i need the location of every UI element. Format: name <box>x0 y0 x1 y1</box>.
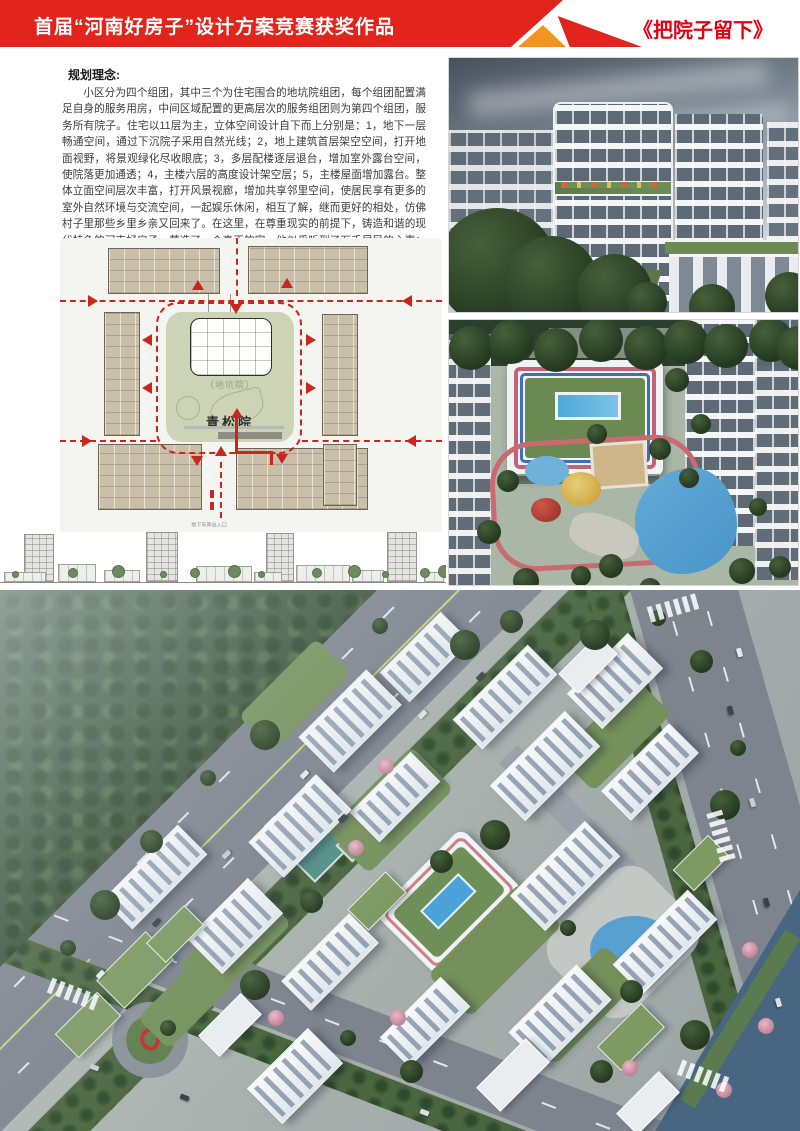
garage-mark <box>210 502 214 510</box>
street-tree-icon <box>340 1030 356 1046</box>
street-tree-icon <box>480 820 510 850</box>
tree-icon <box>599 554 623 578</box>
header-banner: 首届“河南好房子”设计方案竞赛获奖作品 《把院子留下》 <box>0 0 800 57</box>
tree-icon <box>664 320 708 364</box>
flow-line-horizontal-lower-right <box>302 440 442 442</box>
car-icon <box>179 1094 189 1102</box>
tree-icon <box>489 320 533 364</box>
photo-courtyard <box>448 319 799 586</box>
blossom-tree-icon <box>378 758 394 774</box>
street-tree-icon <box>620 980 643 1003</box>
roof-pool <box>555 392 621 420</box>
street-tree-icon <box>240 970 270 1000</box>
street-tree-icon <box>560 920 576 936</box>
tree-icon <box>679 468 699 488</box>
site-plan-diagram: （地坑院） 青松院 地下车库出入 <box>60 238 442 538</box>
tree-icon <box>649 438 671 460</box>
aerial-estate-layer <box>0 590 800 1131</box>
tree-icon <box>665 368 689 392</box>
elevation-tree-icon <box>190 568 200 578</box>
elevation-tree-icon <box>112 565 125 578</box>
flow-arrow-icon <box>142 382 152 394</box>
flow-arrow-icon <box>281 278 293 288</box>
elevation-tree-icon <box>348 565 361 578</box>
flow-line-vertical-bottom <box>220 462 222 518</box>
flow-line-vertical-top <box>236 238 238 296</box>
tree-icon <box>477 520 501 544</box>
tree-icon <box>639 578 661 586</box>
roof-garden-band <box>665 240 799 254</box>
elevation-lowrise <box>296 565 350 582</box>
elevation-tree-icon <box>228 565 241 578</box>
elevation-lowrise <box>4 572 46 582</box>
tree-icon <box>691 414 711 434</box>
elevation-tree-icon <box>160 571 167 578</box>
entry-arrow-stem <box>235 416 238 454</box>
crosswalk-bar <box>673 598 682 615</box>
tree-icon <box>497 470 519 492</box>
tree-icon <box>624 326 668 370</box>
crosswalk-bar <box>655 603 664 620</box>
elevation-tree-icon <box>258 571 265 578</box>
plan-building-right-lower <box>323 444 357 506</box>
plan-building-top-right <box>248 246 368 294</box>
crosswalk-bar <box>711 827 728 836</box>
street-tree-icon <box>400 1060 423 1083</box>
elevation-lowrise <box>196 566 252 582</box>
tree-icon <box>587 424 607 444</box>
garage-mark <box>210 490 214 498</box>
flow-arrow-icon <box>142 334 152 346</box>
street-tree-icon <box>590 1060 613 1083</box>
crosswalk-bar <box>714 836 731 845</box>
concept-heading: 规划理念: <box>68 66 120 83</box>
tree-icon <box>729 558 755 584</box>
flow-arrow-icon <box>306 382 316 394</box>
flow-arrow-icon <box>191 456 203 466</box>
street-tree-icon <box>500 610 523 633</box>
flow-arrow-icon <box>192 280 204 290</box>
street-tree-icon <box>372 618 388 634</box>
street-tree-icon <box>450 630 480 660</box>
elevation-tree-icon <box>420 568 430 578</box>
blossom-tree-icon <box>348 840 364 856</box>
street-tree-icon <box>580 620 610 650</box>
elevation-tree-icon <box>312 568 322 578</box>
street-tree-icon <box>680 1020 710 1050</box>
aerial-view <box>0 590 800 1131</box>
ladybug-sculpture <box>531 498 561 522</box>
elevation-tower <box>387 532 417 582</box>
blossom-tree-icon <box>742 942 758 958</box>
tree-icon <box>749 498 767 516</box>
street-tree-icon <box>60 940 76 956</box>
elevation-tree-icon <box>68 568 78 578</box>
flow-arrow-icon <box>82 435 92 447</box>
tree-icon <box>534 328 578 372</box>
flow-arrow-icon <box>215 446 227 456</box>
blossom-tree-icon <box>622 1060 638 1076</box>
competition-title: 首届“河南好房子”设计方案竞赛获奖作品 <box>34 12 395 39</box>
crosswalk-bar <box>664 601 673 618</box>
elevation-groundline <box>0 582 446 583</box>
flow-line-horizontal-lower-left <box>60 440 156 442</box>
crosswalk-bar <box>709 818 726 827</box>
plan-building-left-strip <box>104 312 140 436</box>
street-tree-icon <box>160 1020 176 1036</box>
plan-building-right-strip <box>322 314 358 436</box>
blossom-tree-icon <box>268 1010 284 1026</box>
flow-arrow-icon <box>402 295 412 307</box>
crosswalk-bar <box>716 844 733 853</box>
crosswalk-bar <box>681 596 690 613</box>
tree-icon <box>769 556 791 578</box>
tree-icon <box>449 326 493 370</box>
play-dome-yellow <box>561 472 601 506</box>
flow-arrow-icon <box>406 435 416 447</box>
photo-street <box>448 57 799 313</box>
street-tree-icon <box>730 740 746 756</box>
garage-entrance-label: 地下车库出入口 <box>191 521 227 529</box>
work-title: 《把院子留下》 <box>612 14 794 43</box>
street-tree-icon <box>690 650 713 673</box>
street-tree-icon <box>200 770 216 786</box>
entry-arrow-stem <box>270 451 273 465</box>
blossom-tree-icon <box>390 1010 406 1026</box>
elevation-tree-icon <box>382 571 389 578</box>
tree-icon <box>571 566 591 586</box>
entry-arrow-stem <box>235 451 273 454</box>
terrace-flowers <box>561 182 661 188</box>
poster-page: 首届“河南好房子”设计方案竞赛获奖作品 《把院子留下》 规划理念: 小区分为四个… <box>0 0 800 1131</box>
street-tree-icon <box>300 890 323 913</box>
flow-arrow-icon <box>306 334 316 346</box>
tree-icon <box>579 319 623 362</box>
blossom-tree-icon <box>758 1018 774 1034</box>
flow-arrow-icon <box>88 295 98 307</box>
street-tree-icon <box>90 890 120 920</box>
elevation-strip <box>0 532 446 588</box>
flow-loop-around-courtyard <box>156 302 302 454</box>
flow-arrow-icon <box>276 454 288 464</box>
elevation-tree-icon <box>12 571 19 578</box>
street-tree-icon <box>250 720 280 750</box>
street-tree-icon <box>140 830 163 853</box>
left-building-edge <box>448 334 491 586</box>
tree-icon <box>704 324 748 368</box>
elevation-tree-icon <box>438 565 446 578</box>
street-tree-icon <box>430 850 453 873</box>
